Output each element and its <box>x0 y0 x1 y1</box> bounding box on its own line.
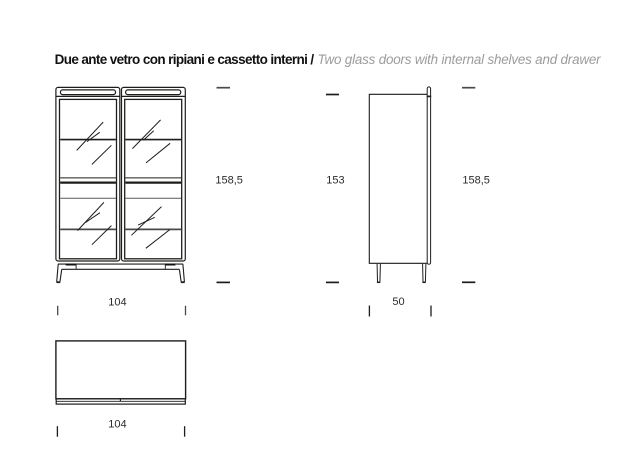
svg-text:50: 50 <box>392 296 404 308</box>
svg-text:104: 104 <box>108 418 126 430</box>
svg-text:Two glass doors with internal: Two glass doors with internal shelves an… <box>318 52 602 67</box>
svg-text:158,5: 158,5 <box>215 175 243 187</box>
svg-text:158,5: 158,5 <box>462 175 490 187</box>
svg-text:Due ante vetro con ripiani e c: Due ante vetro con ripiani e cassetto in… <box>55 52 315 67</box>
svg-text:153: 153 <box>326 175 344 187</box>
svg-text:104: 104 <box>108 296 126 308</box>
